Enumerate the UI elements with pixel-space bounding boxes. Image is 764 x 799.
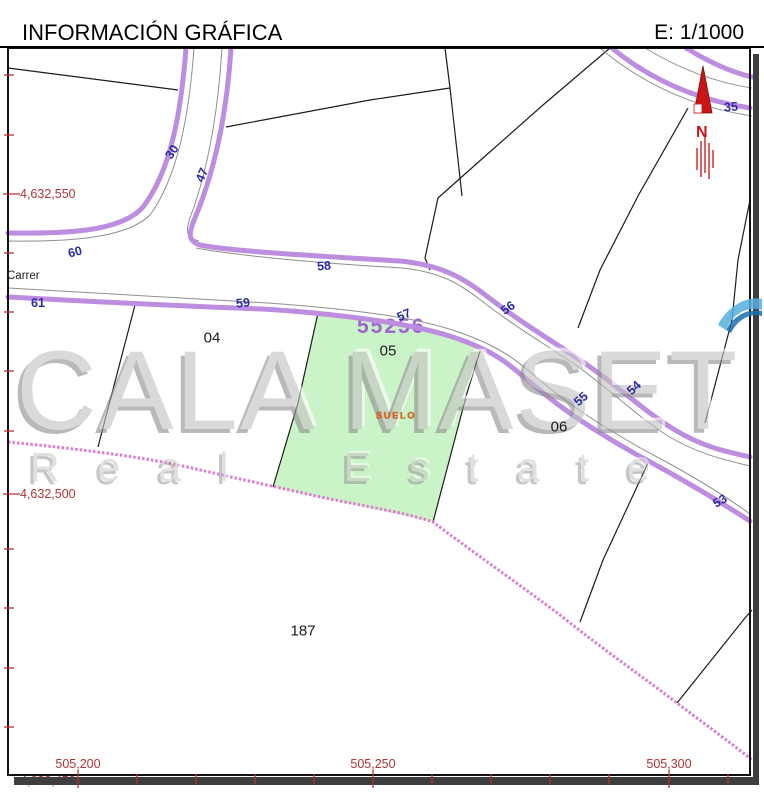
road-number-58: 58 [317,259,332,274]
map-labels: Carrer SUELO 304760615859575655545335 04… [0,0,764,799]
parcel-number-06: 06 [551,419,568,436]
road-number-61: 61 [31,296,45,310]
parcel-number-187: 187 [290,623,315,640]
parcel-number-05: 05 [380,343,397,360]
road-number-60: 60 [67,244,84,261]
road-number-55: 55 [571,389,591,409]
map-scale-label: E: 1/1000 [654,21,744,45]
parcel-number-04: 04 [204,330,221,347]
road-number-59: 59 [235,295,250,310]
road-number-56: 56 [498,298,517,317]
header-bar: INFORMACIÓN GRÁFICA E: 1/1000 [0,0,764,48]
land-use-label: SUELO [376,411,416,422]
road-number-54: 54 [624,378,644,398]
cadastral-map-page: 4,632,5504,632,5004,632,450505,200505,25… [0,0,764,799]
road-number-35: 35 [723,99,738,114]
road-number-57: 57 [395,306,413,324]
street-name-label: Carrer [7,270,40,282]
road-number-53: 53 [710,491,729,510]
page-title: INFORMACIÓN GRÁFICA [22,20,282,46]
road-number-47: 47 [193,166,211,184]
road-number-30: 30 [162,142,181,161]
